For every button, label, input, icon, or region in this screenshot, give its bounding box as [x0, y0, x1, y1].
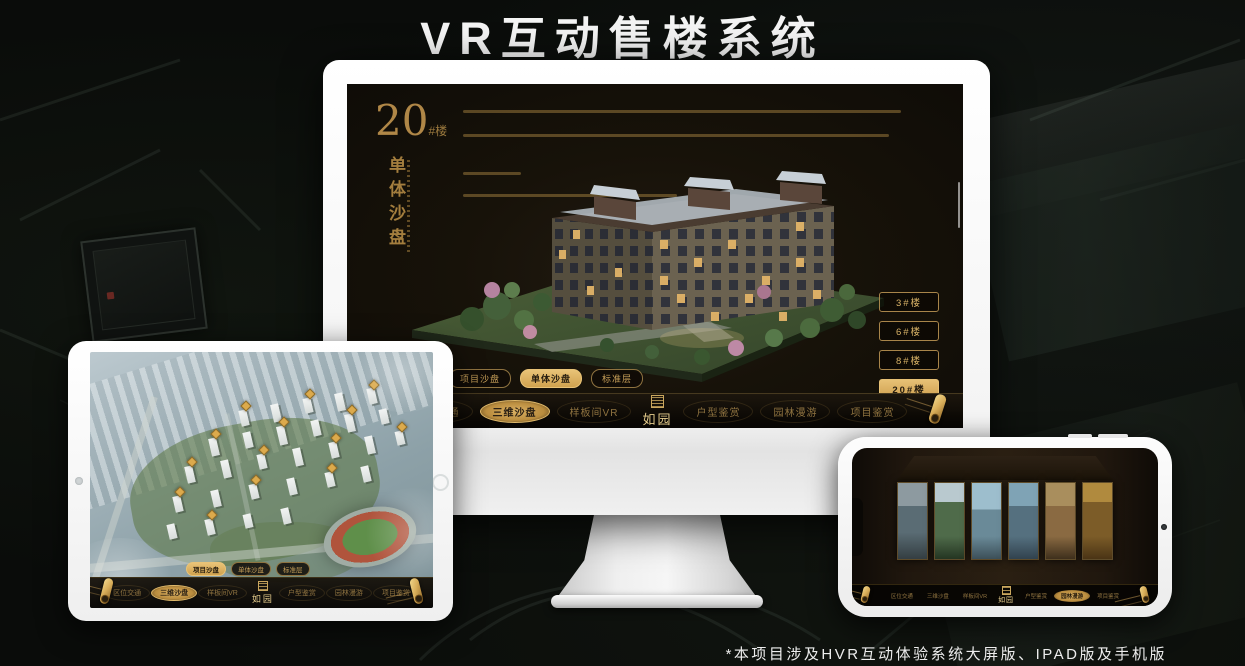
logo-text: 如园	[998, 595, 1014, 605]
logo-seal-icon	[1002, 586, 1011, 595]
tablet-sub-tabs: 项目沙盘 单体沙盘 标准层	[186, 562, 310, 576]
tablet-navbar: 区位交通 三维沙盘 样板间VR 如园 户型鉴赏 园林漫游 项目鉴赏	[90, 577, 433, 608]
footnote: *本项目涉及HVR互动体验系统大屏版、IPAD版及手机版	[726, 643, 1167, 664]
gallery-panels	[897, 482, 1113, 560]
nav-item-garden-roam[interactable]: 园林漫游	[330, 586, 368, 600]
screen-scrollbar[interactable]	[958, 182, 960, 228]
page-title: VR互动售楼系统	[0, 2, 1245, 67]
monitor-base	[551, 595, 763, 608]
floor-number: 20	[375, 96, 428, 145]
floor-button-8[interactable]: 8#楼	[879, 350, 939, 370]
logo-seal-icon	[651, 395, 664, 408]
tablet-camera-icon	[75, 477, 83, 485]
logo-text: 如园	[252, 592, 274, 605]
gallery-panel[interactable]	[971, 482, 1002, 560]
plaque-inner	[92, 240, 195, 331]
ruyuan-logo[interactable]: 如园	[252, 581, 274, 605]
page: VR互动售楼系统 20#楼 单体沙盘	[0, 0, 1245, 666]
building-model-3d[interactable]	[402, 140, 892, 398]
gallery-panel[interactable]	[897, 482, 928, 560]
nav-item-location-traffic[interactable]: 区位交通	[108, 586, 146, 600]
gallery-panel[interactable]	[1082, 482, 1113, 560]
nav-item-floorplan-gallery[interactable]: 户型鉴赏	[283, 586, 321, 600]
nav-item-floorplan-gallery[interactable]: 户型鉴赏	[687, 401, 749, 422]
phone: 区位交通 三维沙盘 样板间VR 如园 户型鉴赏 园林漫游 项目鉴赏	[838, 437, 1172, 617]
floor-unit: #楼	[428, 124, 447, 138]
ruyuan-logo[interactable]: 如园	[642, 395, 672, 428]
phone-camera-icon	[1161, 524, 1167, 530]
logo-seal-icon	[258, 581, 268, 591]
sub-tab-project-sandbox[interactable]: 项目沙盘	[186, 562, 226, 576]
nav-item-project-gallery[interactable]: 项目鉴赏	[841, 401, 903, 422]
description-line	[463, 134, 889, 137]
sub-tab-project-sandbox[interactable]: 项目沙盘	[449, 369, 511, 388]
floor-button-6[interactable]: 6#楼	[879, 321, 939, 341]
plaque-seal	[107, 292, 115, 300]
phone-volume-button[interactable]	[1068, 434, 1092, 438]
nav-item-3d-sandbox[interactable]: 三维沙盘	[924, 591, 952, 601]
aerial-building	[395, 430, 406, 445]
logo-text: 如园	[642, 409, 672, 428]
gallery-panel[interactable]	[934, 482, 965, 560]
description-line	[463, 110, 901, 113]
floor-button-3[interactable]: 3#楼	[879, 292, 939, 312]
sub-tab-standard-floor[interactable]: 标准层	[591, 369, 643, 388]
tablet-screen[interactable]: 项目沙盘 单体沙盘 标准层 区位交通 三维沙盘 样板间VR 如园 户型鉴赏 园林…	[90, 352, 433, 608]
nav-item-model-room-vr[interactable]: 样板间VR	[561, 401, 628, 422]
phone-navbar: 区位交通 三维沙盘 样板间VR 如园 户型鉴赏 园林漫游 项目鉴赏	[852, 584, 1158, 606]
nav-item-model-room-vr[interactable]: 样板间VR	[960, 591, 990, 601]
nav-item-garden-roam[interactable]: 园林漫游	[1058, 591, 1086, 601]
floor-heading: 20#楼	[375, 100, 447, 142]
nav-item-location-traffic[interactable]: 区位交通	[888, 591, 916, 601]
tablet-home-button[interactable]	[432, 474, 449, 491]
gallery-panel[interactable]	[1045, 482, 1076, 560]
floor-selector: 3#楼 6#楼 8#楼 20#楼	[879, 292, 939, 408]
nav-item-model-room-vr[interactable]: 样板间VR	[202, 586, 243, 600]
phone-notch	[852, 498, 863, 556]
nav-item-garden-roam[interactable]: 园林漫游	[764, 401, 826, 422]
nav-item-3d-sandbox[interactable]: 三维沙盘	[484, 401, 546, 422]
nav-item-3d-sandbox[interactable]: 三维沙盘	[155, 586, 193, 600]
phone-power-button[interactable]	[1098, 434, 1128, 438]
background-plaque	[80, 227, 208, 342]
ruyuan-logo[interactable]: 如园	[998, 586, 1014, 605]
monitor-sub-tabs: 项目沙盘 单体沙盘 标准层	[449, 369, 643, 388]
gallery-panel[interactable]	[1008, 482, 1039, 560]
phone-screen[interactable]: 区位交通 三维沙盘 样板间VR 如园 户型鉴赏 园林漫游 项目鉴赏	[852, 448, 1158, 606]
sub-tab-single-sandbox[interactable]: 单体沙盘	[231, 562, 271, 576]
tablet: 项目沙盘 单体沙盘 标准层 区位交通 三维沙盘 样板间VR 如园 户型鉴赏 园林…	[68, 341, 453, 621]
nav-item-floorplan-gallery[interactable]: 户型鉴赏	[1022, 591, 1050, 601]
courtyard-pergola	[897, 456, 1113, 480]
sub-tab-standard-floor[interactable]: 标准层	[276, 562, 310, 576]
sub-tab-single-sandbox[interactable]: 单体沙盘	[520, 369, 582, 388]
